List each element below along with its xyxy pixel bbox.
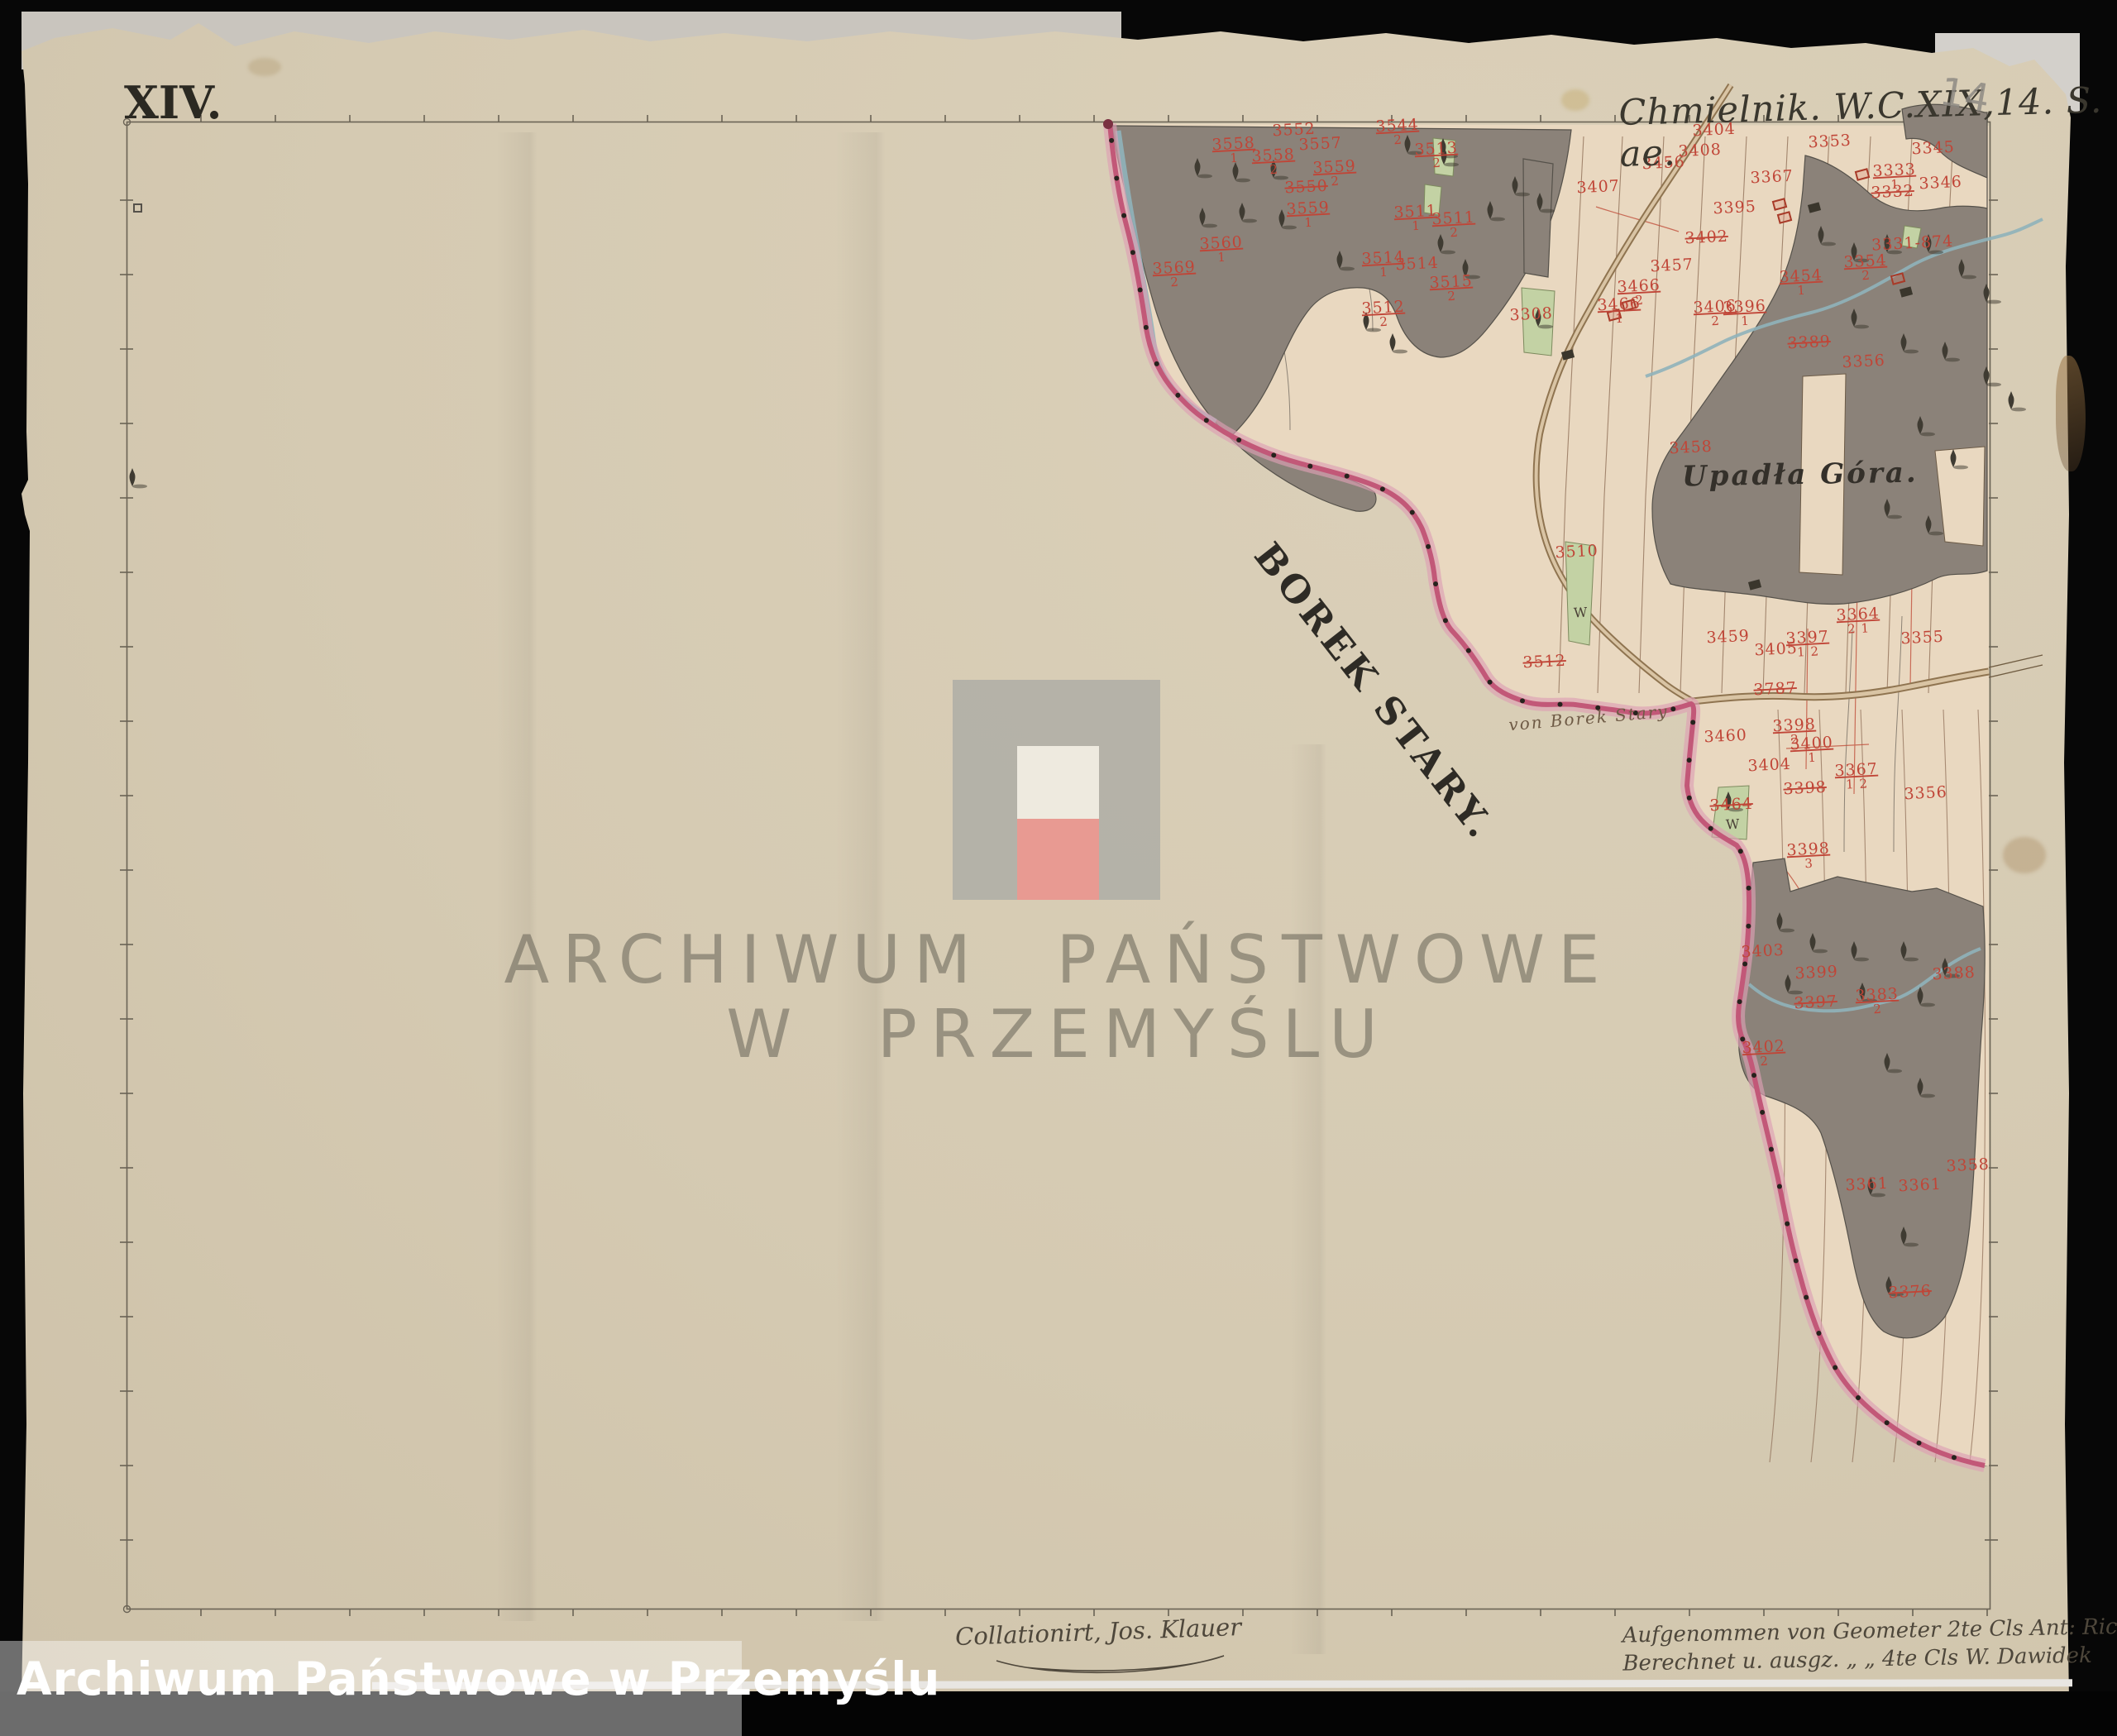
map-title: Chmielnik. W.C.XIX,14. S. ae. [1618,79,2117,175]
tree-icon [130,468,147,488]
parcel-number: 3356 [1842,352,1885,372]
parcel-number: 3361 [1845,1174,1889,1195]
parcel-number: 3512 [1522,652,1566,672]
logo-red-square [1017,819,1099,900]
parcel-number: 3402 [1685,227,1728,248]
parcel-number: 3395 [1713,198,1756,218]
parcel-number: 3787 [1753,679,1797,700]
logo-white-square [1017,746,1099,819]
archive-watermark-logo [953,680,1160,900]
parcel-number: 3457 [1650,256,1694,276]
parcel-number: 3355 [1900,628,1944,648]
parcel-number: 3389 [1787,332,1831,353]
scanned-map-page: 3558135523557355823559235503559135442351… [0,0,2117,1736]
parcel-number: 3358 [1946,1155,1990,1176]
parcel-number: 3510 [1555,542,1599,562]
pencil-annotation: 14 [1937,69,1993,122]
parcel-number: 3557 [1298,134,1342,155]
watermark-line1: ARCHIWUM PAŃSTWOWE [0,923,2117,997]
boundary-start-mark [1103,119,1113,129]
parcel-number: 3376 [1888,1282,1932,1303]
tree-icon [1984,284,2001,304]
parcel-number: 3550 [1284,177,1328,198]
house-icon [1773,198,1786,209]
parcel-number: W [1726,816,1741,833]
parcel-number: 3398 [1783,778,1827,799]
tree-icon [2009,391,2026,411]
parcel-number: 3356 [1904,783,1947,804]
parcel-number: 3460 [1704,726,1747,747]
watermark-line2: W PRZEMYŚLU [0,997,2117,1072]
surveyor-signatures: Aufgenommen von Geometer 2te Cls Ant: Ri… [1622,1613,2117,1678]
parcel-number: W [1574,605,1589,621]
parcel-number: 3404 [1747,755,1791,776]
parcel-number: 3361 [1898,1175,1942,1196]
parcel-number: 3458 [1669,438,1713,458]
parcel-number: 3407 [1576,177,1620,198]
signature-flourish [992,1646,1240,1679]
house-icon [1778,212,1791,222]
house-icon [1891,273,1904,284]
parcel-number: 3459 [1706,627,1750,648]
house-icon [1856,169,1869,179]
archive-watermark-text: ARCHIWUM PAŃSTWOWE W PRZEMYŚLU [0,923,2117,1071]
parcel-number: 3346 [1919,173,1962,194]
archive-footer-text: Archiwum Państwowe w Przemyślu [17,1652,940,1705]
parcel-number: 3514 [1395,254,1439,275]
tree-icon [1984,366,2001,386]
hill-name-label: Upadła Góra. [1682,457,1919,494]
parcel-number: 3464 [1709,795,1753,815]
parcel-number: 3332 [1871,182,1914,203]
sheet-number: XIV. [124,76,222,129]
parcel-number: 3308 [1509,304,1553,325]
